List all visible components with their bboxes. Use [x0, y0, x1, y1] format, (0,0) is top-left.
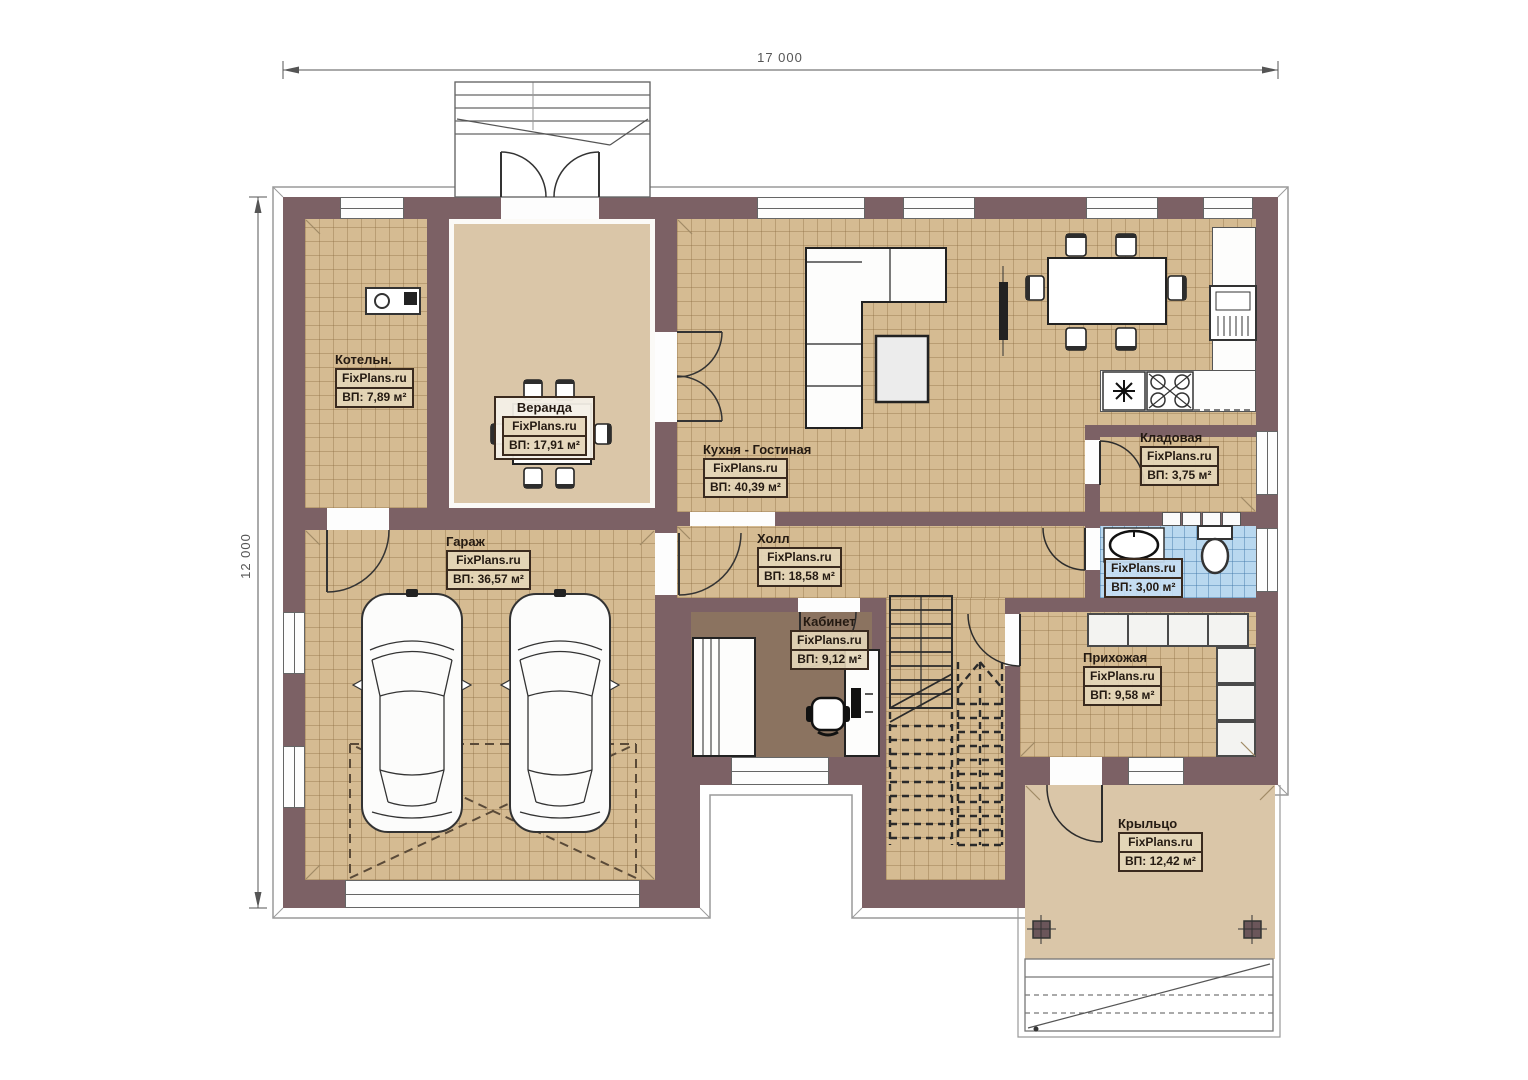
veranda-steps — [455, 82, 650, 197]
room-brand: FixPlans.ru — [1106, 560, 1181, 579]
room-name: Крыльцо — [1118, 816, 1203, 831]
room-area: ВП: 17,91 м² — [504, 437, 585, 454]
room-name: Гараж — [446, 534, 531, 549]
room-info-box: FixPlans.ru ВП: 3,75 м² — [1140, 446, 1219, 486]
car — [501, 589, 619, 832]
room-area: ВП: 18,58 м² — [759, 568, 840, 585]
floor-plan-canvas: 17 000 12 000 — [0, 0, 1528, 1080]
room-name: Кладовая — [1140, 430, 1219, 445]
room-info-box: FixPlans.ru ВП: 36,57 м² — [446, 550, 531, 590]
coffee-table — [876, 336, 928, 402]
room-label-kitchen-living: Кухня - Гостиная FixPlans.ru ВП: 40,39 м… — [703, 442, 811, 498]
room-label-kotelnaya: Котельн. FixPlans.ru ВП: 7,89 м² — [335, 352, 414, 408]
room-area: ВП: 12,42 м² — [1120, 853, 1201, 870]
veranda-kitchen-door-arcs — [677, 332, 722, 421]
room-name: Холл — [757, 531, 842, 546]
entry-door-arc — [968, 614, 1020, 666]
room-name: Кухня - Гостиная — [703, 442, 811, 457]
room-brand: FixPlans.ru — [1085, 668, 1160, 687]
office-chair — [806, 698, 850, 735]
room-info-box: FixPlans.ru ВП: 9,58 м² — [1083, 666, 1162, 706]
fridge — [1210, 286, 1256, 340]
porch-steps — [1025, 959, 1273, 1032]
room-name: Веранда — [502, 400, 587, 415]
room-info-box: FixPlans.ru ВП: 40,39 м² — [703, 458, 788, 498]
room-name: Котельн. — [335, 352, 414, 367]
room-name: Кабинет — [790, 614, 869, 629]
room-area: ВП: 3,75 м² — [1142, 467, 1217, 484]
room-area: ВП: 7,89 м² — [337, 389, 412, 406]
room-area: ВП: 36,57 м² — [448, 571, 529, 588]
room-info-box: FixPlans.ru ВП: 17,91 м² — [502, 416, 587, 456]
stove — [1147, 372, 1193, 410]
room-name: Прихожая — [1083, 650, 1162, 665]
room-brand: FixPlans.ru — [759, 549, 840, 568]
room-brand: FixPlans.ru — [705, 460, 786, 479]
kitchen-sink — [1103, 372, 1145, 410]
room-area: ВП: 9,58 м² — [1085, 687, 1160, 704]
room-label-porch: Крыльцо FixPlans.ru ВП: 12,42 м² — [1118, 816, 1203, 872]
room-brand: FixPlans.ru — [792, 632, 867, 651]
porch-door-arc — [1047, 785, 1102, 842]
room-label-pantry: Кладовая FixPlans.ru ВП: 3,75 м² — [1140, 430, 1219, 486]
office-bookshelf — [693, 638, 755, 756]
room-label-office: Кабинет FixPlans.ru ВП: 9,12 м² — [790, 614, 869, 670]
car — [353, 589, 471, 832]
room-label-entry-hall: Прихожая FixPlans.ru ВП: 9,58 м² — [1083, 650, 1162, 706]
room-label-garage: Гараж FixPlans.ru ВП: 36,57 м² — [446, 534, 531, 590]
room-brand: FixPlans.ru — [1120, 834, 1201, 853]
room-brand: FixPlans.ru — [504, 418, 585, 437]
room-brand: FixPlans.ru — [448, 552, 529, 571]
room-info-box: FixPlans.ru ВП: 12,42 м² — [1118, 832, 1203, 872]
room-area: ВП: 3,00 м² — [1106, 579, 1181, 596]
boiler-unit — [366, 288, 420, 314]
staircase — [890, 596, 1002, 845]
bathroom-door-arc — [1043, 528, 1085, 570]
kitchen-dining-set — [1026, 234, 1186, 350]
room-brand: FixPlans.ru — [337, 370, 412, 389]
room-info-box: FixPlans.ru ВП: 7,89 м² — [335, 368, 414, 408]
room-label-hall: Холл FixPlans.ru ВП: 18,58 м² — [757, 531, 842, 587]
room-label-veranda: Веранда FixPlans.ru ВП: 17,91 м² — [494, 396, 595, 460]
room-info-box: FixPlans.ru ВП: 3,00 м² — [1104, 558, 1183, 598]
toilet — [1198, 526, 1232, 573]
room-info-box: FixPlans.ru ВП: 18,58 м² — [757, 547, 842, 587]
room-area: ВП: 40,39 м² — [705, 479, 786, 496]
porch-posts — [1027, 915, 1267, 944]
room-area: ВП: 9,12 м² — [792, 651, 867, 668]
bathroom-vanity-sink — [1104, 528, 1164, 562]
room-label-bathroom: FixPlans.ru ВП: 3,00 м² — [1104, 558, 1183, 598]
tv-unit — [999, 266, 1008, 356]
room-brand: FixPlans.ru — [1142, 448, 1217, 467]
room-info-box: FixPlans.ru ВП: 9,12 м² — [790, 630, 869, 670]
pantry-door-arc — [1100, 441, 1144, 485]
kotelnaya-door-arc — [327, 530, 389, 592]
garage-hall-door-arc — [679, 533, 741, 595]
